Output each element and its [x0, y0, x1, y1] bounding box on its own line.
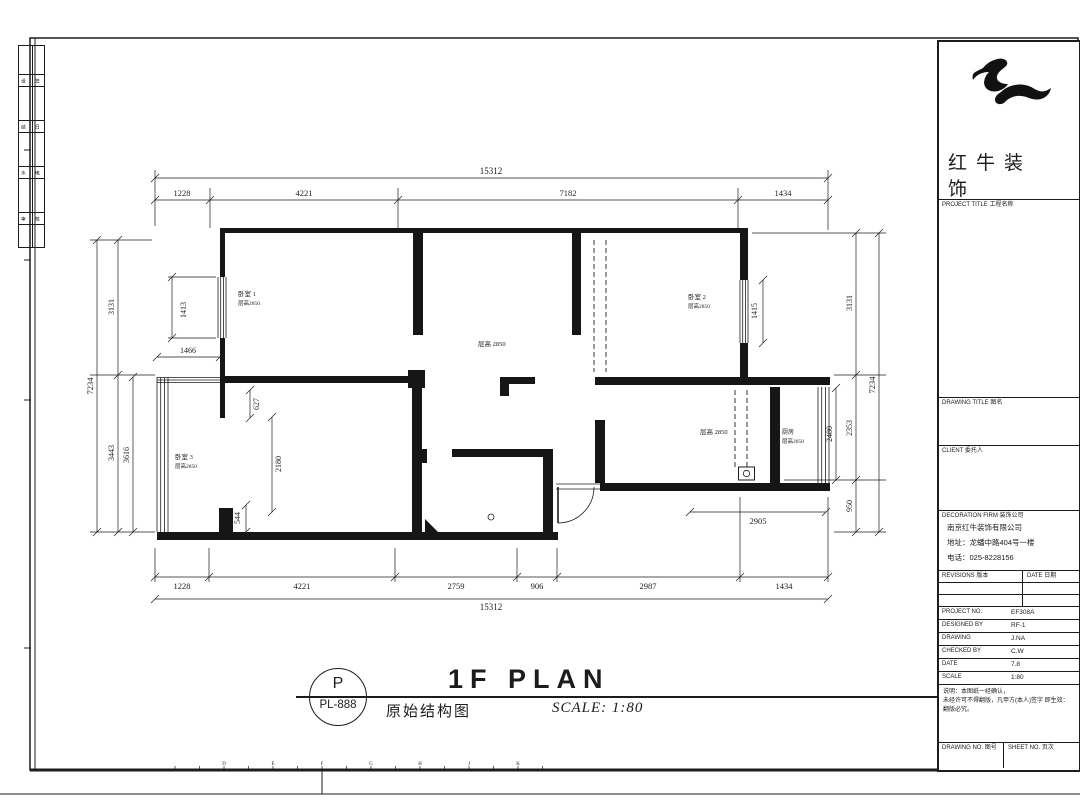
- dim-label: 15312: [480, 602, 503, 612]
- info-value: C.W: [1011, 648, 1024, 655]
- info-label: DESIGNED BY: [942, 622, 983, 628]
- room-sublabel-kitchen: 层高2850: [782, 437, 804, 445]
- revisions-empty-row: [939, 594, 1079, 606]
- strip-cell: 电: [35, 169, 40, 176]
- revisions-empty-row: [939, 582, 1079, 594]
- note-line: 说明：本图纸一经确认，: [943, 688, 1077, 697]
- flue-icon: [739, 467, 755, 480]
- dim-label: 7234: [867, 376, 877, 394]
- bubble-letter: P: [310, 675, 366, 693]
- cell-divider: [1022, 595, 1023, 606]
- dim-label: 2353: [845, 420, 854, 436]
- dim-label: 950: [845, 500, 854, 512]
- info-row-designed-by: DESIGNED BY RF-1: [939, 619, 1079, 632]
- company-logo-icon: [961, 54, 1057, 142]
- project-title-label: PROJECT TITLE 工程名称: [939, 200, 1079, 209]
- revisions-label: REVISIONS 版本: [939, 571, 988, 580]
- room-sublabel-bed3: 层高2850: [175, 462, 197, 470]
- sheet-no-label: SHEET NO. 页次: [1005, 743, 1054, 752]
- ruler-letter: K: [516, 762, 520, 767]
- ruler-letter: G: [369, 762, 373, 767]
- room-label-living: 层高 2850: [478, 339, 506, 348]
- info-value: RF-1: [1011, 622, 1025, 629]
- company-address: 地址：龙蟠中路404号一楼: [939, 535, 1079, 550]
- title-block: 红牛装 饰 PROJECT TITLE 工程名称 DRAWING TITLE 图…: [937, 40, 1080, 772]
- drawing-number-bubble: P PL-888: [309, 668, 367, 726]
- symbols: [488, 467, 755, 523]
- entry-door-arc: [558, 487, 594, 523]
- drawing-title-section: DRAWING TITLE 图名: [939, 397, 1079, 445]
- drawing-title-label: DRAWING TITLE 图名: [939, 398, 1079, 407]
- strip-row: 水 电: [19, 166, 44, 179]
- info-label: SCALE: [942, 674, 962, 680]
- info-row-checked-by: CHECKED BY C.W: [939, 645, 1079, 658]
- walls: [157, 228, 830, 540]
- dim-label: 2480: [825, 426, 834, 442]
- strip-cell: 设: [21, 77, 26, 84]
- info-label: CHECKED BY: [942, 648, 981, 654]
- title-rule-line: [296, 696, 1008, 698]
- info-row-date: DATE 7.8: [939, 658, 1079, 671]
- strip-cell: 签: [35, 77, 40, 84]
- dim-label: 7234: [85, 377, 95, 395]
- strip-cell: 核: [35, 215, 40, 222]
- dim-label: 544: [233, 512, 242, 524]
- dim-label: 1413: [179, 302, 188, 318]
- ruler-letter: E: [271, 762, 274, 767]
- dim-label: 2759: [448, 581, 465, 591]
- cell-divider: [1003, 743, 1004, 768]
- info-row-project-no: PROJECT NO. EF308A: [939, 606, 1079, 619]
- window-bed1: [218, 277, 226, 338]
- dim-label: 7182: [560, 188, 577, 198]
- signature-strip: 设 签 结 日 水 电 审 核: [18, 45, 45, 248]
- ruler-letter: F: [321, 762, 324, 767]
- drawing-sheet: D E F G H J K: [0, 0, 1080, 810]
- dim-label: 2180: [274, 456, 283, 472]
- revisions-header-row: REVISIONS 版本 DATE 日期: [939, 570, 1079, 582]
- notes-section: 说明：本图纸一经确认， 未经许可不得翻版，凡甲方(本人)签字 即生效： 翻版必究…: [939, 684, 1079, 742]
- info-row-scale: SCALE 1:80: [939, 671, 1079, 684]
- company-name: 南京红牛装饰有限公司: [939, 520, 1079, 535]
- project-title-section: PROJECT TITLE 工程名称: [939, 199, 1079, 397]
- dim-label: 15312: [480, 166, 503, 176]
- plan-title-cn: 原始结构图: [386, 700, 471, 721]
- dim-label: 627: [252, 398, 261, 410]
- flue-circle-icon: [743, 470, 749, 476]
- dim-label: 3616: [122, 447, 131, 463]
- room-label-bed3: 卧室 3: [175, 452, 193, 461]
- revisions-date-label: DATE 日期: [1024, 571, 1056, 580]
- client-section: CLIENT 委托人: [939, 445, 1079, 510]
- dim-label: 4221: [296, 188, 313, 198]
- window-bed2: [740, 280, 748, 343]
- info-value: J.NA: [1011, 635, 1025, 642]
- strip-cell: 日: [35, 123, 40, 130]
- dim-label: 1415: [750, 303, 759, 319]
- dim-label: 3131: [845, 295, 854, 311]
- strip-cell: 审: [21, 215, 26, 222]
- room-label-dining: 层高 2850: [700, 427, 728, 436]
- bubble-code: PL-888: [310, 699, 366, 711]
- company-logo-text-1: 红牛装: [939, 150, 1080, 176]
- ruler-letter: J: [468, 762, 470, 767]
- cell-divider: [1022, 571, 1023, 582]
- dim-label: 3443: [107, 445, 116, 461]
- room-label-kitchen: 厨房: [782, 428, 794, 436]
- strip-cell: 水: [21, 169, 26, 176]
- strip-row: 设 签: [19, 74, 44, 87]
- strip-row: 结 日: [19, 120, 44, 133]
- drawing-no-section: DRAWING NO. 图号 SHEET NO. 页次: [939, 742, 1079, 768]
- drawing-no-label: DRAWING NO. 图号: [939, 743, 997, 752]
- ruler-letters: D E F G H J K: [222, 762, 520, 767]
- client-label: CLIENT 委托人: [939, 446, 1079, 455]
- info-row-drawing: DRAWING J.NA: [939, 632, 1079, 645]
- dim-label: 1434: [776, 581, 794, 591]
- dim-label: 2905: [750, 516, 767, 526]
- info-label: DRAWING: [942, 635, 971, 641]
- info-label: PROJECT NO.: [942, 609, 982, 615]
- plan-scale: SCALE: 1:80: [552, 700, 643, 717]
- room-label-bed1: 卧室 1: [238, 289, 256, 298]
- note-line: 翻版必究。: [943, 706, 1077, 715]
- firm-section: DECORATION FIRM 装饰公司 南京红牛装饰有限公司 地址：龙蟠中路4…: [939, 510, 1079, 570]
- dim-label: 1228: [174, 188, 191, 198]
- info-value: 7.8: [1011, 661, 1020, 668]
- note-line: 未经许可不得翻版，凡甲方(本人)签字 即生效：: [943, 697, 1077, 706]
- room-sublabel-bed2: 层高2850: [688, 302, 710, 310]
- info-label: DATE: [942, 661, 958, 667]
- strip-row: 审 核: [19, 212, 44, 225]
- ruler-letter: H: [418, 762, 422, 767]
- room-label-bed2: 卧室 2: [688, 292, 706, 301]
- dim-label: 4221: [294, 581, 311, 591]
- plan-title-en: 1F PLAN: [448, 664, 610, 695]
- info-value: EF308A: [1011, 609, 1035, 616]
- company-phone: 电话：025-8228156: [939, 550, 1079, 565]
- strip-cell: 结: [21, 123, 26, 130]
- entry-threshold: [556, 484, 600, 489]
- dim-label: 906: [531, 581, 544, 591]
- room-sublabel-bed1: 层高2850: [238, 299, 260, 307]
- dim-label: 1434: [775, 188, 793, 198]
- dim-label: 2987: [640, 581, 657, 591]
- dim-label: 1228: [174, 581, 191, 591]
- info-value: 1:80: [1011, 674, 1024, 681]
- cell-divider: [1022, 583, 1023, 594]
- ruler-letter: D: [222, 762, 226, 767]
- dim-label: 1466: [180, 346, 196, 355]
- door-swing-triangle: [425, 519, 438, 532]
- dim-label: 3131: [107, 299, 116, 315]
- firm-label: DECORATION FIRM 装饰公司: [939, 511, 1079, 520]
- floor-drain-icon: [488, 514, 494, 520]
